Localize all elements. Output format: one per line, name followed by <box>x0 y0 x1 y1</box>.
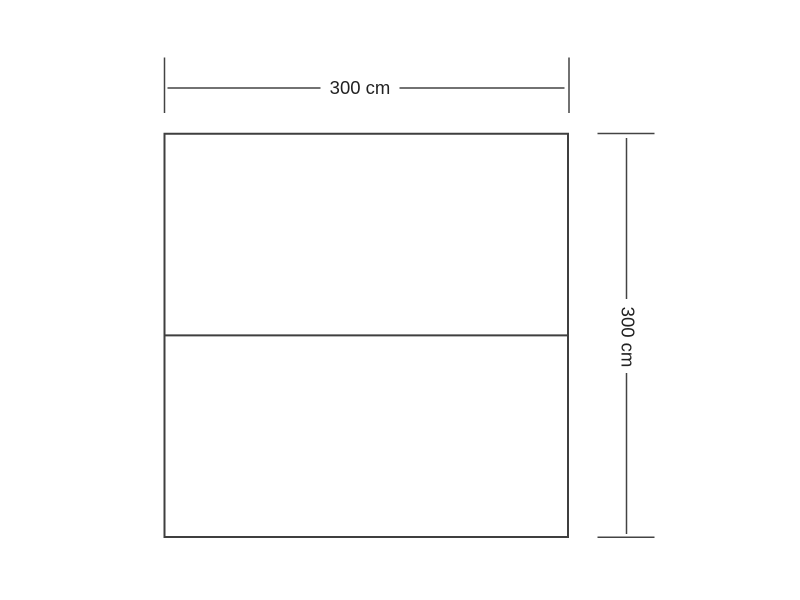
svg-text:300 cm: 300 cm <box>617 307 638 368</box>
svg-text:300 cm: 300 cm <box>330 77 391 98</box>
